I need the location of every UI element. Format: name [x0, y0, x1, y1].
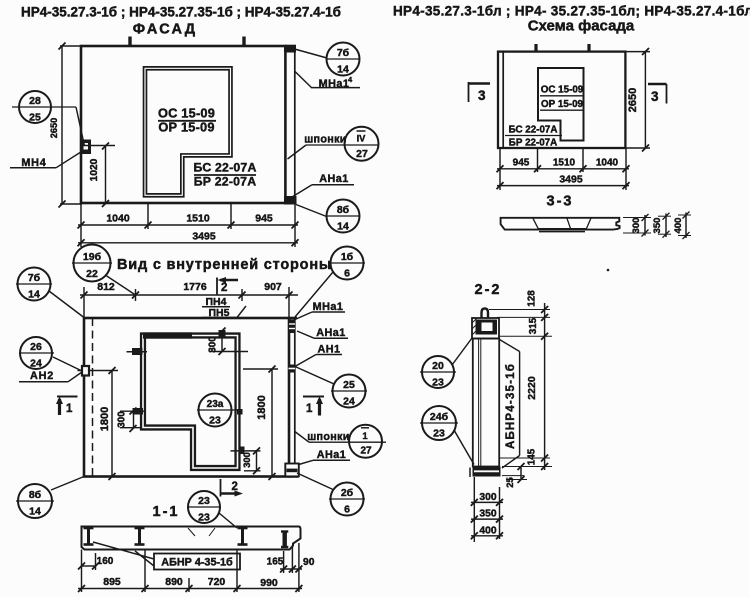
- svg-text:23а: 23а: [207, 399, 224, 410]
- svg-text:145: 145: [527, 448, 538, 465]
- svg-text:3495: 3495: [192, 230, 216, 242]
- svg-text:Вид с внутренней стороны: Вид с внутренней стороны: [117, 257, 332, 273]
- svg-text:24: 24: [343, 396, 355, 408]
- svg-text:БС 22-07А: БС 22-07А: [509, 125, 558, 136]
- svg-text:шпонки: шпонки: [307, 431, 349, 443]
- svg-text:НР4-35.27.3-1б ; НР4-35.27.35: НР4-35.27.3-1б ; НР4-35.27.35-1б ; НР4-3…: [21, 5, 341, 20]
- svg-text:27: 27: [356, 148, 368, 160]
- svg-text:19б: 19б: [83, 251, 102, 263]
- svg-text:БС 22-07А: БС 22-07А: [193, 161, 256, 175]
- svg-text:1020: 1020: [89, 158, 100, 181]
- svg-text:ОР 15-09: ОР 15-09: [158, 120, 214, 135]
- svg-text:3: 3: [651, 89, 659, 104]
- svg-text:90: 90: [303, 557, 315, 568]
- svg-text:28: 28: [29, 95, 41, 107]
- svg-text:128: 128: [526, 290, 537, 307]
- svg-text:1: 1: [362, 431, 368, 442]
- svg-text:23: 23: [198, 512, 210, 524]
- svg-text:2650: 2650: [627, 88, 639, 112]
- svg-text:8б: 8б: [337, 204, 350, 216]
- svg-text:25: 25: [505, 477, 516, 488]
- svg-text:АН1: АН1: [317, 344, 340, 356]
- svg-text:1776: 1776: [183, 281, 207, 293]
- svg-text:6: 6: [344, 268, 350, 280]
- svg-text:315: 315: [528, 317, 539, 334]
- svg-text:165: 165: [267, 557, 284, 568]
- svg-text:400: 400: [673, 218, 684, 234]
- svg-text:22: 22: [86, 268, 98, 280]
- svg-text:МНа1: МНа1: [313, 301, 344, 313]
- svg-text:АНа1: АНа1: [316, 327, 346, 339]
- svg-text:3-3: 3-3: [547, 194, 574, 210]
- svg-text:1: 1: [306, 403, 313, 415]
- svg-text:БР 22-07А: БР 22-07А: [194, 175, 257, 189]
- svg-text:14: 14: [337, 64, 349, 76]
- svg-text:АН2: АН2: [30, 370, 54, 382]
- svg-text:8б: 8б: [29, 489, 42, 501]
- svg-text:1б: 1б: [341, 251, 354, 263]
- svg-text:26: 26: [30, 341, 42, 353]
- svg-text:24б: 24б: [430, 411, 449, 423]
- svg-text:14: 14: [337, 221, 349, 233]
- svg-text:1800: 1800: [99, 407, 111, 431]
- svg-text:890: 890: [165, 576, 183, 588]
- svg-text:1: 1: [66, 403, 73, 415]
- svg-text:20: 20: [432, 360, 444, 372]
- svg-text:ОР 15-09: ОР 15-09: [541, 99, 583, 110]
- svg-text:1800: 1800: [256, 395, 268, 419]
- svg-text:23: 23: [209, 415, 221, 427]
- svg-text:907: 907: [264, 281, 282, 293]
- svg-text:7б: 7б: [28, 272, 41, 284]
- svg-text:2: 2: [232, 481, 238, 493]
- svg-text:7б: 7б: [337, 47, 350, 59]
- svg-text:945: 945: [513, 158, 530, 169]
- svg-text:3495: 3495: [559, 174, 583, 186]
- svg-text:АНа1: АНа1: [317, 449, 347, 461]
- svg-text:23: 23: [433, 428, 445, 440]
- svg-text:895: 895: [103, 576, 121, 588]
- svg-text:БР 22-07А: БР 22-07А: [509, 138, 557, 149]
- svg-text:25: 25: [29, 112, 41, 124]
- svg-text:25: 25: [343, 379, 355, 391]
- svg-text:945: 945: [255, 213, 273, 225]
- svg-text:1-1: 1-1: [153, 504, 180, 520]
- svg-text:2-2: 2-2: [475, 282, 502, 298]
- svg-text:2650: 2650: [49, 118, 59, 138]
- svg-text:350: 350: [479, 508, 496, 519]
- svg-text:27: 27: [360, 446, 372, 457]
- svg-text:14: 14: [28, 289, 40, 301]
- svg-text:3: 3: [478, 88, 486, 103]
- svg-text:2: 2: [221, 282, 227, 294]
- svg-text:IV: IV: [357, 134, 367, 144]
- svg-text:Схема фасада: Схема фасада: [528, 18, 635, 35]
- svg-text:ОС 15-09: ОС 15-09: [158, 106, 215, 121]
- svg-text:1510: 1510: [553, 158, 576, 169]
- svg-text:АБНР4-35-1б: АБНР4-35-1б: [505, 363, 517, 449]
- svg-text:24: 24: [30, 358, 42, 370]
- svg-text:АНа1: АНа1: [319, 173, 349, 185]
- svg-text:1040: 1040: [106, 213, 130, 225]
- svg-text:6: 6: [344, 504, 350, 516]
- svg-text:160: 160: [97, 556, 114, 567]
- svg-text:400: 400: [479, 526, 496, 537]
- svg-text:АБНР 4-35-1б: АБНР 4-35-1б: [161, 557, 233, 569]
- svg-text:300: 300: [631, 218, 642, 234]
- svg-text:1510: 1510: [186, 213, 210, 225]
- svg-text:990: 990: [260, 577, 278, 589]
- svg-text:300: 300: [117, 411, 128, 428]
- svg-text:1040: 1040: [596, 158, 619, 169]
- svg-text:2220: 2220: [526, 376, 538, 400]
- svg-text:23: 23: [198, 495, 210, 507]
- svg-text:300: 300: [479, 492, 496, 503]
- svg-text:300: 300: [208, 336, 219, 353]
- svg-text:14: 14: [29, 506, 41, 518]
- svg-text:812: 812: [97, 281, 115, 293]
- svg-text:ОС 15-09: ОС 15-09: [541, 85, 584, 96]
- svg-text:23: 23: [432, 377, 444, 389]
- svg-text:2б: 2б: [341, 487, 354, 499]
- svg-text:350: 350: [652, 218, 663, 234]
- svg-text:шпонки: шпонки: [304, 134, 346, 146]
- svg-text:720: 720: [208, 576, 226, 588]
- svg-text:ФАСАД: ФАСАД: [133, 22, 198, 38]
- svg-text:300: 300: [242, 452, 252, 468]
- svg-text:НР4-35.27.3-1бл ; НР4- 35.27.: НР4-35.27.3-1бл ; НР4- 35.27.35-1бл; НР4…: [393, 4, 750, 19]
